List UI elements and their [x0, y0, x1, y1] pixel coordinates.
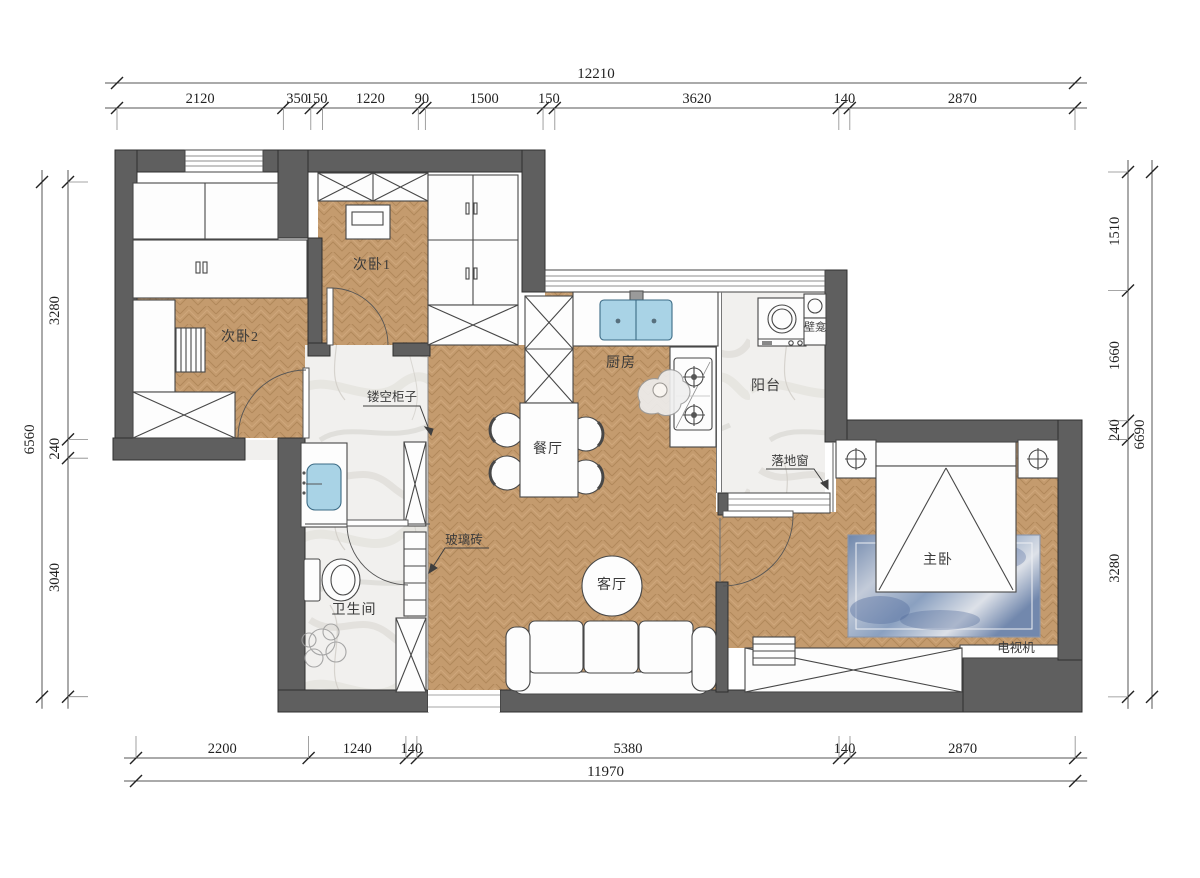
- floor-plan-drawing: 1221021203501501220901500150362014028701…: [0, 0, 1200, 878]
- room-label-bedroom1: 次卧1: [353, 259, 391, 273]
- dim-label: 12210: [577, 66, 615, 82]
- bedroom1-desk: [346, 205, 390, 239]
- dim-label: 1510: [1107, 217, 1123, 246]
- dim-label: 5380: [613, 741, 642, 757]
- nightstand-left: [836, 440, 876, 478]
- toilet: [304, 559, 360, 601]
- nightstand-right: [1018, 440, 1058, 478]
- bedroom2-wardrobe: [133, 392, 235, 438]
- dim-label: 140: [833, 91, 855, 107]
- dim-label: 1500: [470, 91, 499, 107]
- dim-label: 3040: [47, 563, 63, 592]
- sofa: [506, 621, 716, 694]
- room-label-living: 客厅: [597, 579, 627, 593]
- room-label-bedroom2: 次卧2: [221, 331, 259, 345]
- wall-niche: [804, 294, 826, 345]
- kitchen-balcony-window: [545, 270, 825, 292]
- bedroom2-cabinet: [133, 300, 175, 392]
- dim-label: 140: [401, 741, 423, 757]
- bedroom1-wardrobe: [428, 175, 518, 345]
- bedroom2-window: [185, 150, 263, 172]
- annotation-hollow-cabinet: 镂空柜子: [367, 391, 417, 404]
- dim-label: 1240: [343, 741, 372, 757]
- dim-label: 240: [1107, 419, 1123, 441]
- hollow-cabinet-column: [404, 442, 426, 526]
- dim-label: 6690: [1132, 419, 1148, 449]
- dim-label: 1660: [1107, 341, 1123, 370]
- floor-plan-canvas: 1221021203501501220901500150362014028701…: [0, 0, 1200, 878]
- bedroom2-door-threshold: [245, 440, 278, 460]
- dim-label: 350: [286, 91, 308, 107]
- dim-label: 3280: [47, 296, 63, 325]
- hall-lower-cabinet: [396, 618, 426, 692]
- glass-brick-panel: [404, 532, 426, 616]
- balcony-french-window: [728, 493, 830, 513]
- shoe-bench: [753, 637, 795, 665]
- dim-label: 3280: [1107, 554, 1123, 583]
- dim-label: 2200: [208, 741, 237, 757]
- bedroom1-overhead-cabinet: [318, 173, 428, 201]
- dim-label: 1220: [356, 91, 385, 107]
- dim-label: 2120: [186, 91, 215, 107]
- dim-label: 11970: [587, 764, 624, 780]
- dim-label: 150: [306, 91, 328, 107]
- dim-label: 240: [47, 438, 63, 460]
- room-label-kitchen: 厨房: [606, 357, 636, 371]
- room-label-bathroom: 卫生间: [332, 604, 377, 618]
- room-label-master: 主卧: [923, 554, 953, 568]
- annotation-glass-brick: 玻璃砖: [445, 534, 483, 547]
- annotation-niche: 壁龛: [804, 323, 826, 334]
- washing-machine: [758, 298, 806, 346]
- room-label-balcony: 阳台: [751, 380, 781, 394]
- dim-label: 90: [415, 91, 430, 107]
- room-label-dining: 餐厅: [533, 443, 563, 457]
- dim-label: 2870: [948, 91, 977, 107]
- annotation-tv: 电视机: [997, 642, 1035, 655]
- entry-opening: [428, 690, 500, 712]
- dim-label: 6560: [22, 424, 38, 454]
- dim-label: 150: [538, 91, 560, 107]
- kitchen-tall-cabinet: [525, 296, 573, 403]
- dim-label: 140: [834, 741, 856, 757]
- bathroom-sink: [302, 464, 341, 510]
- dim-label: 2870: [948, 741, 977, 757]
- master-bed: [876, 442, 1016, 592]
- dim-label: 3620: [682, 91, 711, 107]
- annotation-french-window: 落地窗: [771, 455, 809, 468]
- bedroom2-dresser: [176, 328, 205, 372]
